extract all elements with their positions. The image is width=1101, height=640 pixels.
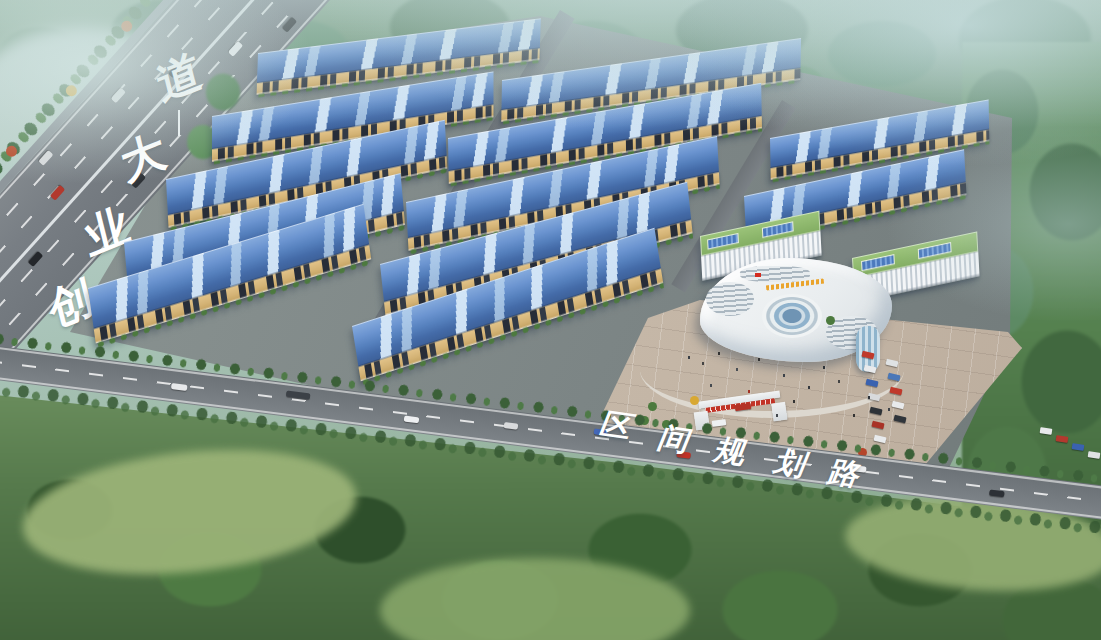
solar-panel — [708, 234, 738, 248]
car — [404, 415, 420, 423]
car — [111, 87, 126, 103]
red-flag — [755, 273, 761, 277]
car — [171, 383, 188, 391]
solar-panel — [862, 255, 894, 270]
hq-louver-facade — [706, 282, 754, 316]
car — [504, 422, 519, 430]
flag-pole — [178, 110, 180, 136]
car — [989, 489, 1005, 497]
car — [228, 41, 243, 57]
industrial-park-aerial-rendering: 道 大 业 创 — [0, 0, 1101, 640]
gate-kiosk — [771, 402, 787, 422]
car — [50, 185, 65, 201]
autumn-shrub — [690, 396, 699, 405]
solar-panel — [763, 223, 793, 237]
shrub — [648, 402, 657, 411]
hq-glass-atrium — [762, 294, 822, 338]
plaza-people — [688, 356, 690, 359]
solar-panel — [919, 243, 951, 258]
shrub — [826, 316, 835, 325]
hq-louver-facade — [740, 266, 810, 282]
